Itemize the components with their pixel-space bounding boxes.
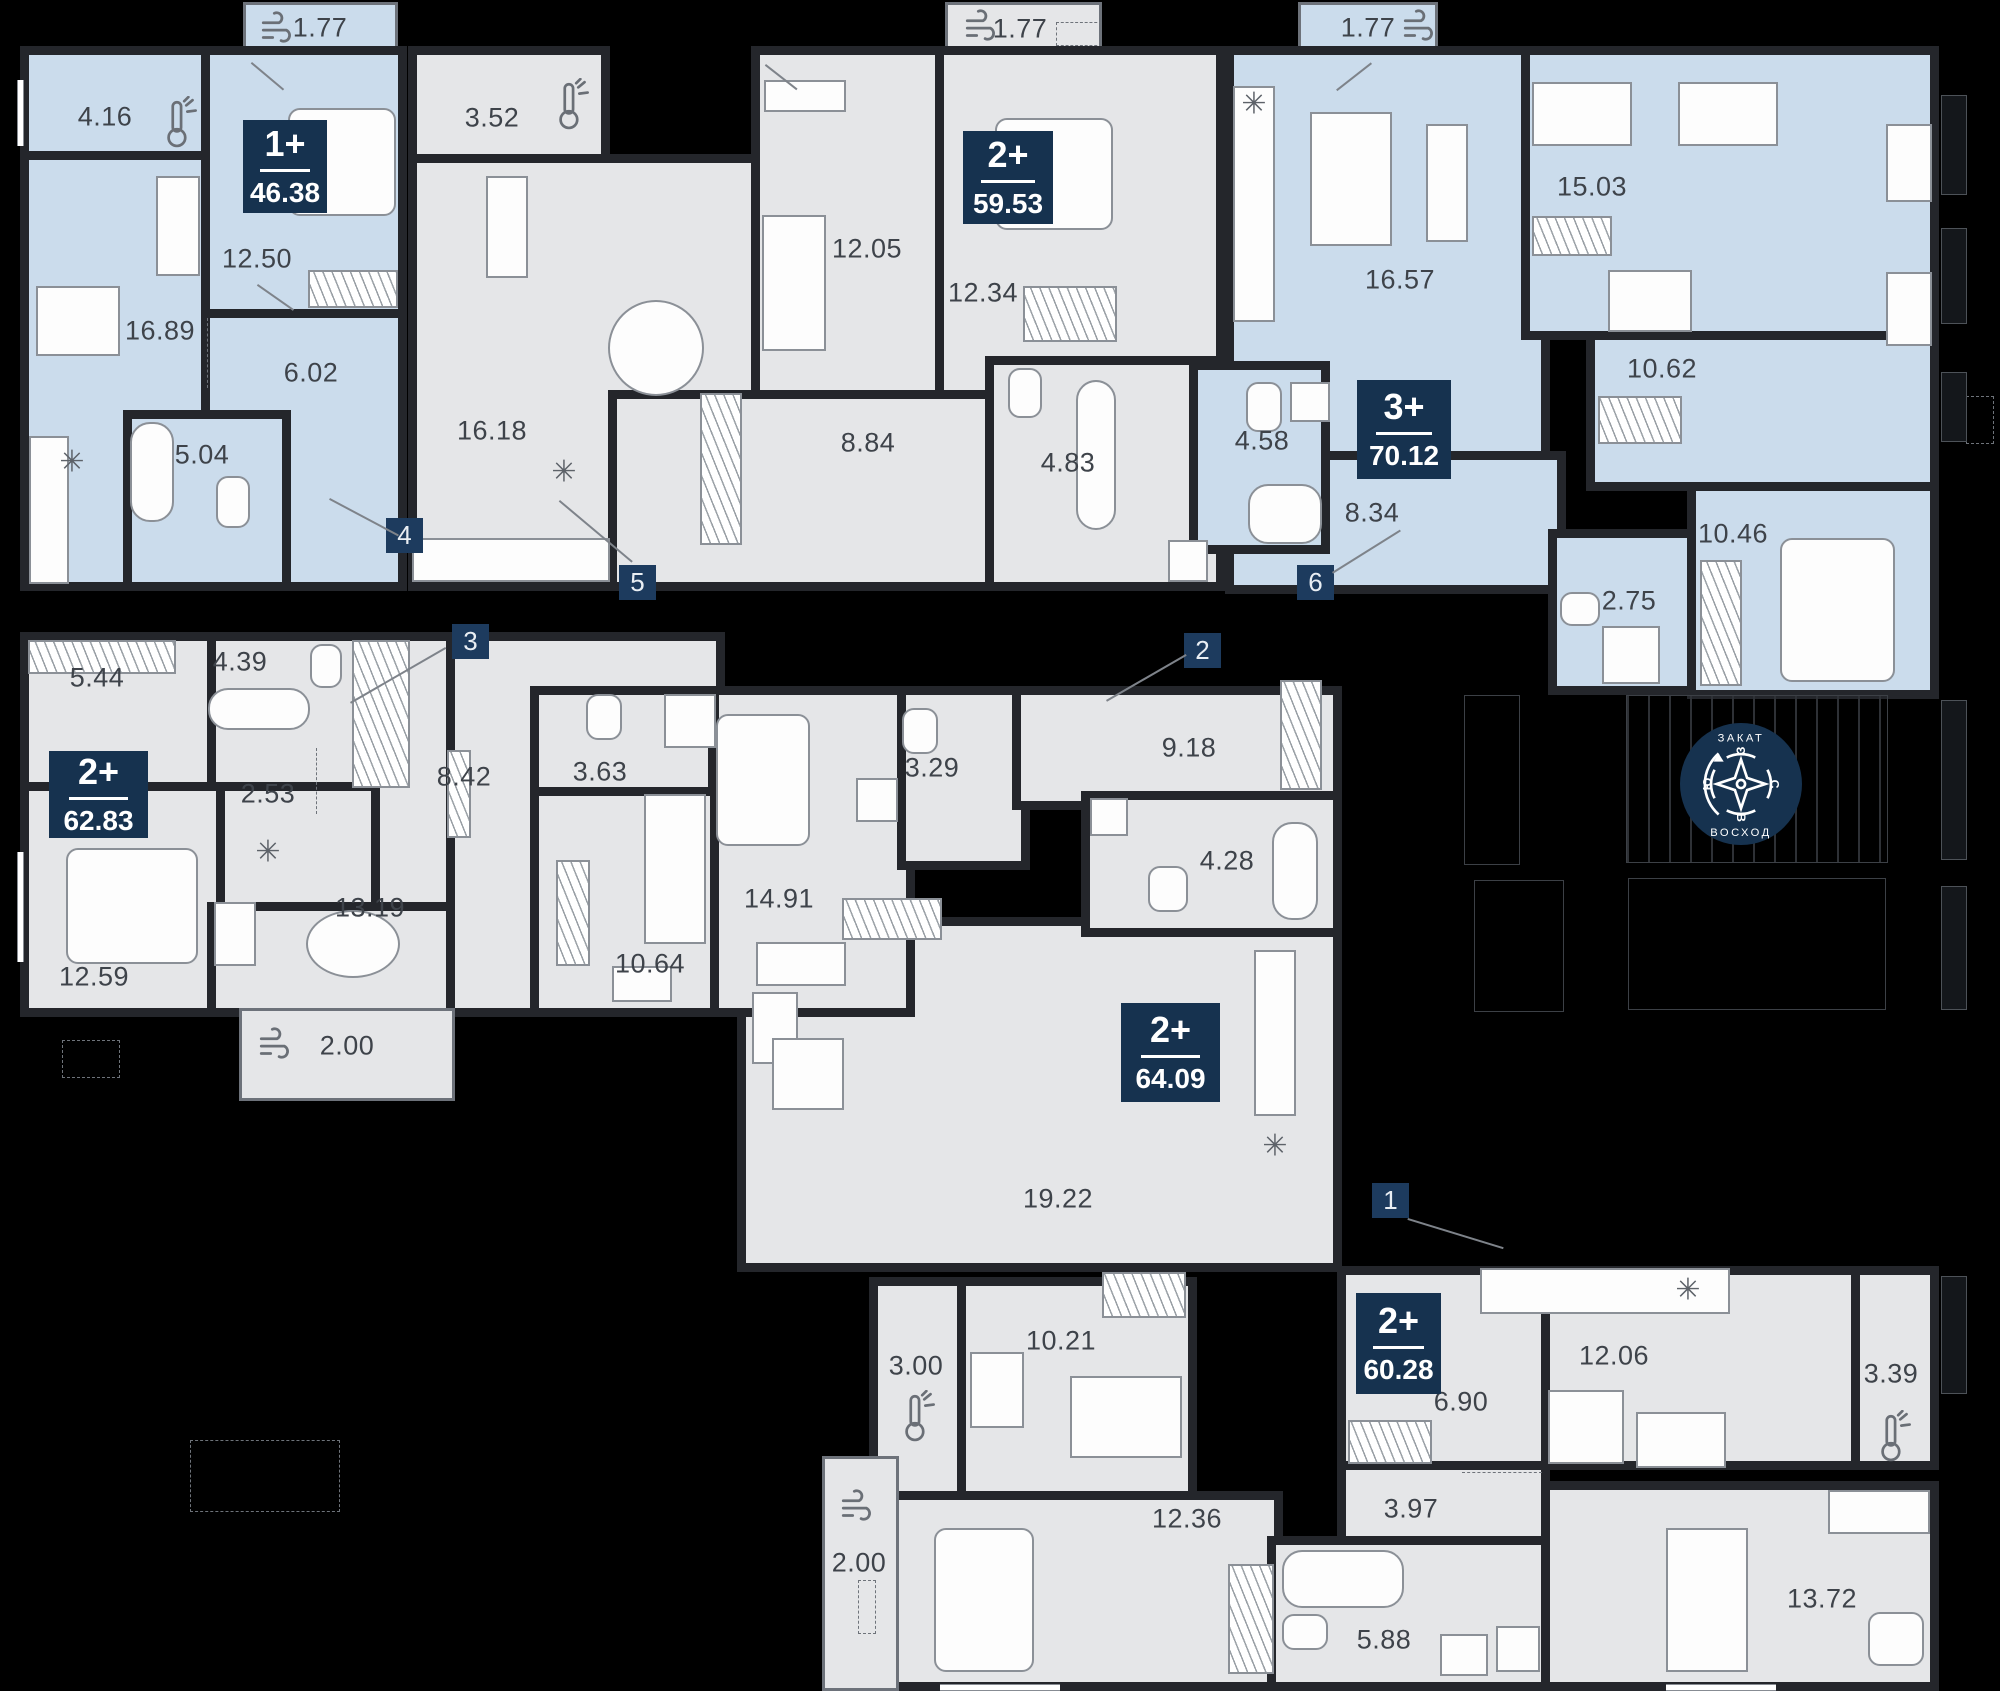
room-hall	[608, 390, 1050, 591]
room-area-label: 2.00	[832, 1548, 887, 1579]
apartment-type: 2+	[987, 137, 1028, 173]
toilet-symbol	[216, 476, 250, 528]
kitchen-counter-symbol	[412, 538, 610, 582]
apartment-area: 59.53	[973, 190, 1043, 218]
wardrobe-symbol	[1700, 560, 1742, 686]
room-area-label: 5.44	[70, 663, 125, 694]
wind-icon	[256, 1026, 298, 1062]
room-area-label: 10.46	[1698, 519, 1768, 550]
wardrobe-symbol	[352, 640, 410, 788]
desk-symbol	[764, 80, 846, 112]
divider	[69, 797, 128, 800]
washer-symbol	[1290, 382, 1330, 422]
washer-symbol	[1168, 540, 1208, 582]
room-area-label: 4.28	[1200, 846, 1255, 877]
entrance-badge[interactable]: 6	[1297, 565, 1334, 600]
dining-table-symbol	[1310, 112, 1392, 246]
bed-symbol	[934, 1528, 1034, 1672]
dashed-outline	[1966, 396, 1994, 444]
apartment-type: 2+	[1378, 1303, 1419, 1339]
sofa-symbol	[756, 942, 846, 986]
bed-symbol	[1666, 1528, 1748, 1672]
fridge-icon: ✳	[551, 455, 576, 490]
wind-icon	[962, 8, 1004, 44]
window-frame	[1941, 700, 1967, 860]
apartment-type: 2+	[78, 754, 119, 790]
room-area-label: 3.52	[465, 103, 520, 134]
apartment-card[interactable]: 2+ 59.53	[963, 131, 1053, 224]
toilet-symbol	[310, 644, 342, 688]
toilet-symbol	[1148, 866, 1188, 912]
room-area-label: 8.34	[1345, 498, 1400, 529]
thermometer-icon	[552, 78, 590, 130]
bed-symbol	[762, 215, 826, 351]
room-area-label: 3.97	[1384, 1494, 1439, 1525]
room-area-label: 1.77	[293, 13, 348, 44]
bed-symbol	[1070, 1376, 1182, 1458]
bed-symbol	[716, 714, 810, 846]
elevator-shaft	[1464, 695, 1520, 865]
armchair-symbol	[1868, 1612, 1924, 1666]
room-area-label: 3.29	[905, 753, 960, 784]
window	[17, 80, 24, 146]
entrance-badge[interactable]: 3	[452, 624, 489, 659]
wardrobe-symbol	[700, 393, 742, 545]
shower-symbol	[856, 778, 898, 822]
svg-text:ВОСХОД: ВОСХОД	[1710, 827, 1772, 839]
wardrobe-symbol	[1228, 1564, 1274, 1674]
wind-icon	[1400, 8, 1442, 44]
window-frame	[1941, 95, 1967, 195]
room-area-label: 13.72	[1787, 1584, 1857, 1615]
dining-table-symbol	[1548, 1390, 1624, 1464]
room-area-label: 12.59	[59, 962, 129, 993]
fridge-icon: ✳	[255, 835, 280, 870]
room-area-label: 2.53	[241, 779, 296, 810]
shower-symbol	[1602, 626, 1660, 684]
room-area-label: 4.58	[1235, 426, 1290, 457]
divider	[1141, 1055, 1200, 1058]
room-area-label: 12.50	[222, 244, 292, 275]
bed-symbol	[1780, 538, 1895, 682]
toilet-symbol	[1246, 382, 1282, 432]
room-area-label: 3.63	[573, 757, 628, 788]
fridge-icon: ✳	[1241, 87, 1266, 122]
dashed-outline	[1056, 22, 1102, 46]
apartment-card[interactable]: 3+ 70.12	[1357, 380, 1451, 479]
dashed-wall-line	[1462, 1472, 1542, 1473]
desk-symbol	[1828, 1490, 1930, 1534]
window-frame	[1941, 228, 1967, 324]
apartment-card[interactable]: 2+ 64.09	[1121, 1003, 1220, 1102]
room-area-label: 12.36	[1152, 1504, 1222, 1535]
window	[940, 1684, 1060, 1691]
room-area-label: 3.00	[889, 1351, 944, 1382]
shower-symbol	[664, 694, 716, 748]
apartment-area: 70.12	[1369, 442, 1439, 470]
apartment-type: 3+	[1383, 389, 1424, 425]
svg-text:В: В	[1734, 813, 1748, 822]
thermometer-icon	[898, 1390, 936, 1442]
room-area-label: 12.05	[832, 234, 902, 265]
dashed-wall-line	[207, 318, 208, 388]
wardrobe-symbol	[308, 270, 398, 308]
fridge-icon: ✳	[59, 445, 84, 480]
room-area-label: 10.62	[1627, 354, 1697, 385]
apartment-area: 62.83	[63, 807, 133, 835]
entrance-badge[interactable]: 5	[619, 565, 656, 600]
badge-pointer-line	[1408, 1218, 1504, 1249]
divider	[1373, 1346, 1424, 1349]
corridor-outline	[1628, 878, 1886, 1010]
room-area-label: 4.39	[213, 647, 268, 678]
fridge-icon: ✳	[1675, 1273, 1700, 1308]
svg-text:З: З	[1734, 746, 1748, 754]
room-area-label: 6.90	[1434, 1387, 1489, 1418]
dashed-outline	[190, 1440, 340, 1512]
entrance-badge[interactable]: 4	[386, 518, 423, 553]
bathtub-symbol	[1282, 1550, 1404, 1608]
dashed-wall-line	[316, 748, 317, 814]
room-area-label: 1.77	[1341, 13, 1396, 44]
floor-plan: 1.77 4.16 12.50 16.89 6.02 5.04 1.77 3.5…	[0, 0, 2000, 1691]
room-area-label: 16.57	[1365, 265, 1435, 296]
sofa-symbol	[156, 176, 200, 276]
divider	[981, 180, 1035, 183]
washer-symbol	[1090, 798, 1128, 836]
window	[1666, 1684, 1776, 1691]
wardrobe-symbol	[842, 898, 942, 940]
window	[17, 852, 24, 962]
thermometer-icon	[160, 96, 198, 148]
toilet-symbol	[1560, 592, 1600, 626]
room-area-label: 16.89	[125, 316, 195, 347]
room-area-label: 4.16	[78, 102, 133, 133]
room-area-label: 13.19	[335, 893, 405, 924]
sofa-symbol	[1608, 270, 1692, 332]
room-area-label: 6.02	[284, 358, 339, 389]
room-area-label: 2.75	[1602, 586, 1657, 617]
apartment-area: 60.28	[1363, 1356, 1433, 1384]
wardrobe-symbol	[1598, 396, 1682, 444]
wardrobe-symbol	[556, 860, 590, 966]
room-area-label: 5.04	[175, 440, 230, 471]
toilet-symbol	[902, 708, 938, 754]
window-frame	[1941, 886, 1967, 1010]
bed-symbol	[1532, 82, 1632, 146]
dining-table-symbol	[36, 286, 120, 356]
wind-icon	[838, 1488, 880, 1524]
sofa-symbol	[1426, 124, 1468, 242]
compass-icon: ЗАКАТ ВОСХОД З С В Ю	[1680, 723, 1802, 845]
bed-symbol	[644, 794, 706, 944]
sofa-symbol	[1636, 1412, 1726, 1468]
washer-symbol	[1496, 1626, 1540, 1672]
kitchen-counter-symbol	[214, 902, 256, 966]
desk-symbol	[970, 1352, 1024, 1428]
divider	[260, 169, 310, 172]
entrance-badge[interactable]: 1	[1372, 1183, 1409, 1218]
room-area-label: 9.18	[1162, 733, 1217, 764]
wardrobe-symbol	[1102, 1272, 1186, 1318]
room-area-label: 16.18	[457, 416, 527, 447]
thermometer-icon	[1874, 1410, 1912, 1462]
apartment-type: 1+	[264, 126, 305, 162]
kitchen-counter-symbol	[1254, 950, 1296, 1116]
apartment-area: 64.09	[1135, 1065, 1205, 1093]
fridge-icon: ✳	[1262, 1129, 1287, 1164]
bathtub-symbol	[1248, 484, 1322, 544]
toilet-symbol	[586, 694, 622, 740]
toilet-symbol	[1008, 368, 1042, 418]
room-area-label: 19.22	[1023, 1184, 1093, 1215]
bathtub-symbol	[1272, 822, 1318, 920]
room-area-label: 3.39	[1864, 1359, 1919, 1390]
apartment-area: 46.38	[250, 179, 320, 207]
room-area-label: 2.00	[320, 1031, 375, 1062]
wardrobe-symbol	[1532, 216, 1612, 256]
wind-icon	[258, 10, 300, 46]
room-area-label: 8.42	[437, 762, 492, 793]
room-area-label: 5.88	[1357, 1625, 1412, 1656]
wardrobe-symbol	[1280, 680, 1322, 790]
apartment-card[interactable]: 2+ 62.83	[49, 751, 148, 838]
bathtub-symbol	[130, 422, 174, 522]
desk-symbol	[1886, 272, 1932, 346]
window-frame	[1941, 1276, 1967, 1394]
dashed-outline	[62, 1040, 120, 1078]
elevator-shaft	[1474, 880, 1564, 1012]
room-area-label: 12.06	[1579, 1341, 1649, 1372]
room-area-label: 10.64	[615, 949, 685, 980]
entrance-badge[interactable]: 2	[1184, 633, 1221, 668]
sofa-symbol	[486, 176, 528, 278]
room-area-label: 15.03	[1557, 172, 1627, 203]
apartment-type: 2+	[1150, 1012, 1191, 1048]
room-area-label: 14.91	[744, 884, 814, 915]
bed-symbol	[66, 848, 198, 964]
dashed-outline	[858, 1580, 876, 1634]
room-area-label: 12.34	[948, 278, 1018, 309]
dining-table-symbol	[608, 300, 704, 396]
svg-text:ЗАКАТ: ЗАКАТ	[1718, 732, 1765, 744]
wardrobe-symbol	[1348, 1420, 1432, 1464]
toilet-symbol	[1282, 1614, 1328, 1650]
bathtub-symbol	[208, 688, 310, 730]
room-area-label: 8.84	[841, 428, 896, 459]
dining-table-symbol	[772, 1038, 844, 1110]
wardrobe-symbol	[1023, 286, 1117, 342]
apartment-card[interactable]: 1+ 46.38	[243, 120, 327, 213]
desk-symbol	[1886, 124, 1932, 202]
window-frame	[1941, 372, 1967, 442]
room-area-label: 4.83	[1041, 448, 1096, 479]
apartment-card[interactable]: 2+ 60.28	[1356, 1293, 1441, 1394]
svg-text:С: С	[1767, 780, 1781, 789]
bed-symbol	[1678, 82, 1778, 146]
room-area-label: 10.21	[1026, 1326, 1096, 1357]
divider	[1376, 432, 1432, 435]
svg-text:Ю: Ю	[1701, 777, 1715, 790]
sink-symbol	[1440, 1634, 1488, 1676]
